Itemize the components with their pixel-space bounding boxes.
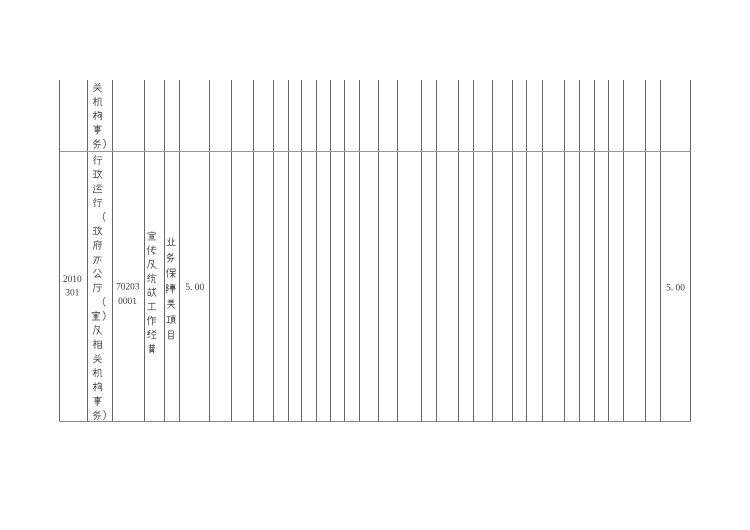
svg-text:301: 301 [65, 289, 79, 299]
svg-text:2010: 2010 [63, 275, 82, 285]
svg-text:5. 00: 5. 00 [185, 283, 204, 293]
svg-text:70203: 70203 [116, 283, 140, 293]
svg-text:5. 00: 5. 00 [666, 284, 685, 294]
svg-text:0001: 0001 [118, 297, 137, 307]
